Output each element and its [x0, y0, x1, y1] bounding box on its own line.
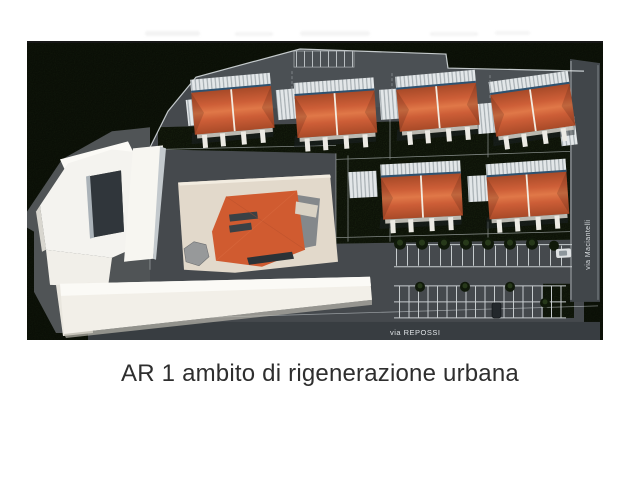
- duplex-building-1: [186, 73, 276, 149]
- car-dark: [492, 303, 501, 318]
- duplex-building-3: [391, 70, 481, 146]
- document-page: via REPOSSI via Maciantelli AR 1 ambito …: [0, 0, 640, 480]
- duplex-building-2: [290, 77, 379, 152]
- duplex-building-6: [482, 159, 571, 234]
- scan-artifact: [430, 32, 478, 36]
- parking-stalls-top: [294, 51, 354, 67]
- scan-artifact: [235, 32, 273, 36]
- duplex-building-4: [484, 71, 577, 151]
- scan-artifact: [495, 31, 530, 35]
- scan-artifact: [300, 31, 370, 36]
- site-plan-svg: via REPOSSI via Maciantelli: [27, 43, 603, 340]
- duplex-building-5: [376, 160, 464, 234]
- figure-caption: AR 1 ambito di rigenerazione urbana: [0, 360, 640, 388]
- site-plan-rendering: via REPOSSI via Maciantelli: [27, 41, 603, 340]
- central-building: [178, 174, 338, 272]
- street-label-via-repossi: via REPOSSI: [390, 328, 440, 337]
- car-white: [556, 248, 571, 258]
- street-label-via-maciantelli: via Maciantelli: [585, 220, 592, 270]
- scan-artifact: [145, 31, 200, 36]
